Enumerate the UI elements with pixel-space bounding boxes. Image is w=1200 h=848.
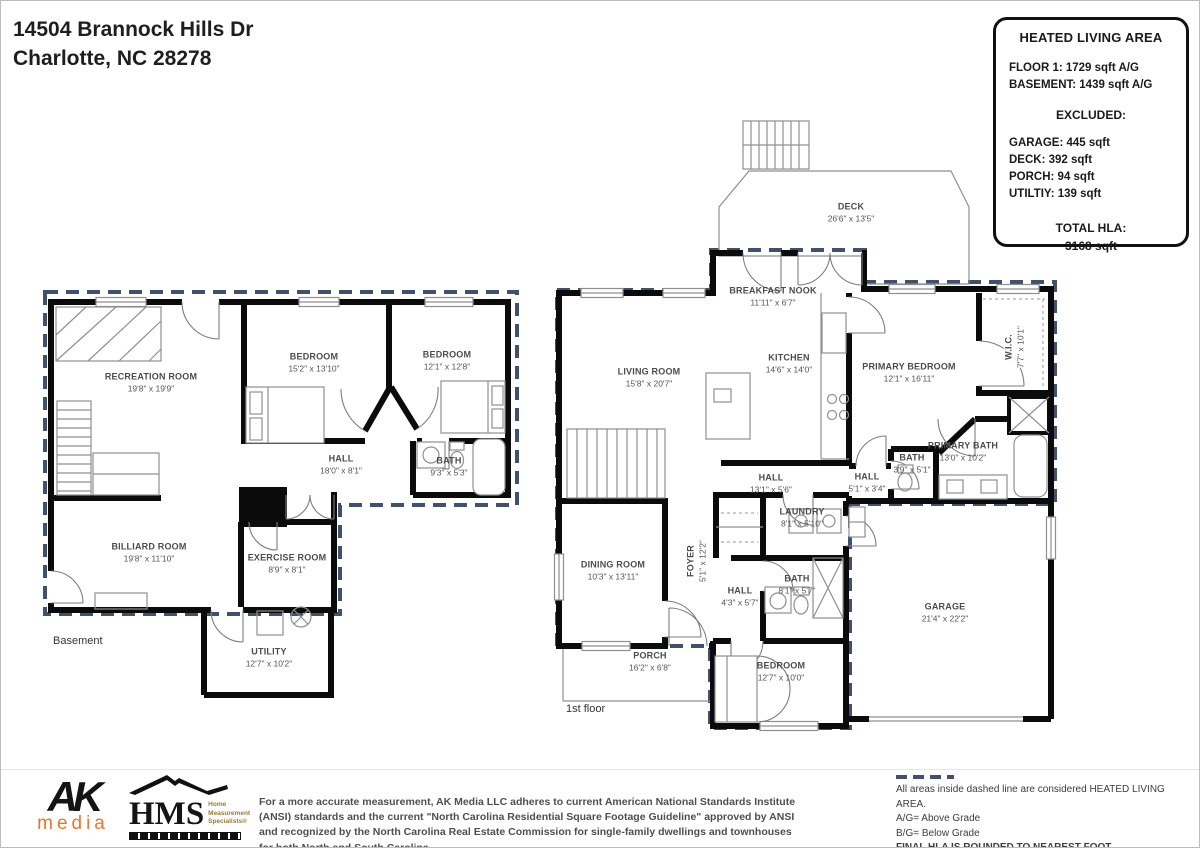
hms-tagline: Home Measurement Specialists® — [208, 801, 250, 829]
room-name: LAUNDRY — [779, 507, 824, 519]
hms-tag-3: Specialists® — [208, 818, 250, 826]
room-dims: 19'8" x 11'10" — [111, 553, 186, 564]
room-name: HALL — [848, 472, 885, 484]
basement-floor-tag: Basement — [53, 635, 103, 647]
room-label-laundry: LAUNDRY 8'1" x 5'10" — [779, 507, 824, 530]
room-label-basement-bedroom-1: BEDROOM 15'2" x 13'10" — [288, 352, 339, 375]
room-label-hall-43: HALL 4'3" x 5'7" — [721, 586, 758, 609]
room-name: UTILITY — [246, 647, 293, 659]
room-dims: 14'6" x 14'0" — [766, 364, 813, 375]
room-name: BATH — [778, 574, 815, 586]
legend-line-2: A/G= Above Grade — [896, 812, 1196, 827]
room-label-recreation-room: RECREATION ROOM 19'8" x 19'9" — [105, 372, 197, 395]
room-dims: 8'1" x 5'7" — [778, 585, 815, 596]
room-name: PORCH — [629, 651, 671, 663]
room-dims: 18'0" x 8'1" — [320, 465, 362, 476]
room-dims: 21'4" x 22'2" — [922, 613, 969, 624]
room-name: BEDROOM — [288, 352, 339, 364]
room-dims: 26'6" x 13'5" — [828, 213, 875, 224]
hms-tag-1: Home — [208, 801, 250, 809]
room-label-exercise-room: EXERCISE ROOM 8'9" x 8'1" — [248, 553, 327, 576]
hms-logo: HMS Home Measurement Specialists® — [129, 773, 249, 840]
room-name: W.I.C. — [1004, 326, 1016, 368]
ak-logo-text: AK — [23, 777, 123, 817]
room-name: HALL — [750, 473, 792, 485]
hms-acronym: HMS — [129, 800, 204, 830]
room-dims: 11'11" x 6'7" — [729, 297, 816, 308]
room-label-hall-main: HALL 13'1" x 5'6" — [750, 473, 792, 496]
room-label-breakfast-nook: BREAKFAST NOOK 11'11" x 6'7" — [729, 286, 816, 309]
hms-ruler-icon — [129, 832, 241, 840]
room-name: HALL — [320, 454, 362, 466]
room-dims: 3'9" x 5'1" — [893, 464, 930, 475]
room-label-billiard-room: BILLIARD ROOM 19'8" x 11'10" — [111, 542, 186, 565]
room-label-basement-bath: BATH 9'3" x 5'3" — [430, 456, 467, 479]
room-label-wic: W.I.C. 7'7" x 10'1" — [1004, 326, 1027, 368]
room-dims: 13'1" x 5'6" — [750, 484, 792, 495]
room-name: HALL — [721, 586, 758, 598]
first-floor-tag: 1st floor — [566, 703, 605, 715]
room-label-utility: UTILITY 12'7" x 10'2" — [246, 647, 293, 670]
room-dims: 19'8" x 19'9" — [105, 383, 197, 394]
hms-tag-2: Measurement — [208, 810, 250, 818]
room-label-first-floor-bedroom: BEDROOM 12'7" x 10'0" — [757, 661, 805, 684]
room-label-kitchen: KITCHEN 14'6" x 14'0" — [766, 353, 813, 376]
garage-door-line — [869, 717, 1023, 721]
room-dims: 16'2" x 6'8" — [629, 662, 671, 673]
room-label-small-bath: BATH 3'9" x 5'1" — [893, 453, 930, 476]
room-name: BATH — [430, 456, 467, 468]
room-name: DINING ROOM — [581, 560, 645, 572]
room-label-deck: DECK 26'6" x 13'5" — [828, 202, 875, 225]
room-dims: 7'7" x 10'1" — [1015, 326, 1026, 368]
room-label-living-room: LIVING ROOM 15'8" x 20'7" — [618, 367, 681, 390]
room-name: DECK — [828, 202, 875, 214]
room-dims: 15'8" x 20'7" — [618, 378, 681, 389]
first-floor-plan — [555, 121, 1056, 731]
floorplan-drawing — [1, 1, 1200, 848]
room-dims: 10'3" x 13'11" — [581, 571, 645, 582]
room-label-dining-room: DINING ROOM 10'3" x 13'11" — [581, 560, 645, 583]
room-name: PRIMARY BATH — [928, 441, 998, 453]
room-dims: 12'7" x 10'2" — [246, 658, 293, 669]
room-dims: 5'1" x 3'4" — [848, 483, 885, 494]
room-name: BEDROOM — [757, 661, 805, 673]
room-name: KITCHEN — [766, 353, 813, 365]
room-label-basement-hall: HALL 18'0" x 8'1" — [320, 454, 362, 477]
room-name: LIVING ROOM — [618, 367, 681, 379]
room-dims: 8'1" x 5'10" — [779, 518, 824, 529]
room-label-foyer: FOYER 5'1" x 12'2" — [686, 540, 709, 582]
ak-media-text: media — [23, 813, 123, 835]
room-label-basement-bedroom-2: BEDROOM 12'1" x 12'8" — [423, 350, 471, 373]
ak-media-logo: AK media — [23, 777, 123, 835]
legend-line-1: All areas inside dashed line are conside… — [896, 783, 1196, 812]
room-name: BILLIARD ROOM — [111, 542, 186, 554]
room-label-porch: PORCH 16'2" x 6'8" — [629, 651, 671, 674]
hla-legend: All areas inside dashed line are conside… — [896, 775, 1196, 848]
room-label-primary-bath: PRIMARY BATH 13'0" x 10'2" — [928, 441, 998, 464]
hms-roof-icon — [129, 773, 229, 795]
legend-line-4: FINAL HLA IS ROUNDED TO NEAREST FOOT — [896, 841, 1196, 848]
room-name: EXERCISE ROOM — [248, 553, 327, 565]
room-dims: 12'1" x 12'8" — [423, 361, 471, 372]
room-label-hall-small: HALL 5'1" x 3'4" — [848, 472, 885, 495]
room-dims: 13'0" x 10'2" — [928, 452, 998, 463]
dashed-line-sample — [896, 775, 954, 779]
room-name: PRIMARY BEDROOM — [862, 362, 956, 374]
room-name: GARAGE — [922, 602, 969, 614]
basement-chimney — [239, 487, 287, 527]
room-label-hall-bath: BATH 8'1" x 5'7" — [778, 574, 815, 597]
measurement-disclaimer: For a more accurate measurement, AK Medi… — [259, 795, 804, 848]
legend-line-3: B/G= Below Grade — [896, 827, 1196, 842]
footer-divider — [1, 769, 1199, 770]
room-name: RECREATION ROOM — [105, 372, 197, 384]
room-name: FOYER — [686, 540, 698, 582]
floor-plan-page: 14504 Brannock Hills Dr Charlotte, NC 28… — [0, 0, 1200, 848]
room-label-primary-bedroom: PRIMARY BEDROOM 12'1" x 16'11" — [862, 362, 956, 385]
room-dims: 12'1" x 16'11" — [862, 373, 956, 384]
room-dims: 9'3" x 5'3" — [430, 467, 467, 478]
room-name: BATH — [893, 453, 930, 465]
room-name: BREAKFAST NOOK — [729, 286, 816, 298]
room-dims: 12'7" x 10'0" — [757, 672, 805, 683]
room-dims: 15'2" x 13'10" — [288, 363, 339, 374]
room-dims: 4'3" x 5'7" — [721, 597, 758, 608]
room-dims: 5'1" x 12'2" — [697, 540, 708, 582]
room-label-garage: GARAGE 21'4" x 22'2" — [922, 602, 969, 625]
room-name: BEDROOM — [423, 350, 471, 362]
room-dims: 8'9" x 8'1" — [248, 564, 327, 575]
